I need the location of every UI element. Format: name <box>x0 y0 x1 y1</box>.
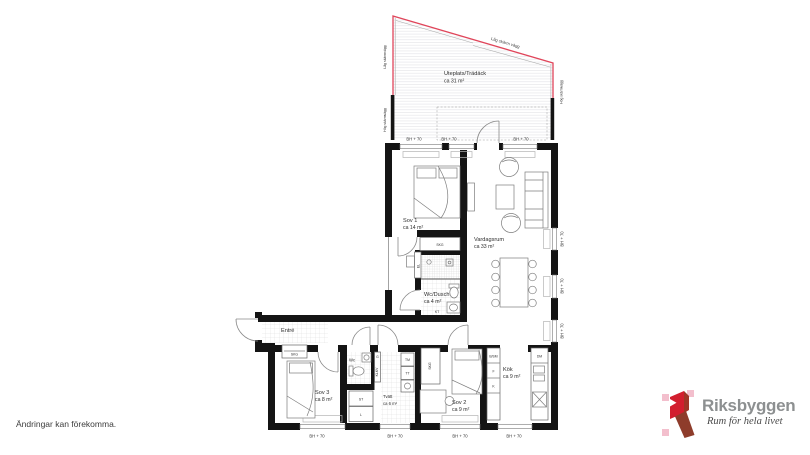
dim-label: BH + 70 <box>387 434 403 439</box>
screen-wall-left-lower-label: Hög skärmvägg <box>383 108 387 132</box>
window <box>552 320 556 342</box>
sov2-area: ca 9 m² <box>452 407 470 413</box>
terrace-area: ca 31 m² <box>444 79 464 85</box>
sov3-area: ca 8 m² <box>315 397 333 403</box>
coffee-table <box>496 185 514 209</box>
laundry-sink <box>401 380 414 392</box>
el-label: EL <box>417 264 421 268</box>
sov1-door-arc <box>398 237 417 256</box>
l-label: L <box>360 413 362 417</box>
entrance-door-arc <box>236 319 258 341</box>
wardrobe-label: SKG <box>436 243 444 247</box>
bsm-label: B/SM <box>489 355 497 359</box>
tt-label: TT <box>405 372 409 376</box>
dim-label: BH + 70 <box>513 137 529 142</box>
wardrobe-label: SKG <box>428 362 432 370</box>
dishwasher-label: DM <box>537 355 542 359</box>
terrace-high-screen-right <box>551 98 555 140</box>
desk <box>420 390 446 413</box>
tvatt-label: Tvätt <box>383 394 393 399</box>
vardagsrum-area: ca 33 m² <box>474 244 494 250</box>
window <box>503 144 537 148</box>
window <box>300 424 345 428</box>
g-label: G <box>376 355 379 359</box>
sov3-label: Sov 3 <box>315 390 329 396</box>
kok-label: Kök <box>503 367 513 373</box>
kitchen-counter <box>531 348 548 420</box>
room-vardagsrum: Vardagsrum ca 33 m² <box>468 158 549 308</box>
wcdusch-door-arc <box>400 290 420 310</box>
shower-area <box>421 255 460 279</box>
dim-label: BH + 70 <box>506 434 522 439</box>
kt-label: KT <box>435 310 439 314</box>
dim-label: BH + 70 <box>560 323 565 339</box>
window <box>380 424 410 428</box>
tvatt-area: ca 6 m² <box>383 401 398 406</box>
floorplan-drawing: Uteplats/Trädäck ca 31 m² Låg skärm vägg… <box>0 0 810 455</box>
brand-name: Riksbyggen <box>702 397 802 415</box>
room-wc: Wc G KLKV <box>347 352 381 384</box>
sov2-label: Sov 2 <box>452 400 466 406</box>
tv-bench <box>468 183 475 211</box>
sov1-label: Sov 1 <box>403 218 417 224</box>
terrace-label: Uteplats/Trädäck <box>444 71 486 77</box>
dim-label: BH + 70 <box>452 434 468 439</box>
sov2-door-arc <box>448 325 468 345</box>
sov1-area: ca 14 m² <box>403 225 423 231</box>
toilet <box>349 366 353 376</box>
tvatt-door-arc <box>378 325 398 345</box>
room-sov1: SKG Sov 1 ca 14 m² <box>403 166 460 251</box>
wc-label: Wc <box>349 358 355 363</box>
wardrobe-label: SKG <box>291 353 299 357</box>
sofa <box>525 172 548 228</box>
wcdusch-area: ca 4 m² <box>424 299 442 305</box>
dim-label: BH + 70 <box>441 137 457 142</box>
terrace-high-screen-left <box>391 95 395 140</box>
tm-label: TM <box>405 358 410 362</box>
disclaimer-text: Ändringar kan förekomma. <box>16 419 116 429</box>
klkv-label: KLKV <box>375 367 379 376</box>
vardagsrum-label: Vardagsrum <box>474 237 504 243</box>
dim-label: BH + 70 <box>406 137 422 142</box>
wcdusch-label: Wc/Dusch <box>424 292 450 298</box>
room-wcdusch: EL Wc/Dusch ca 4 m² KT <box>407 252 461 315</box>
screen-wall-right-label: Hög skärmvägg <box>560 80 564 104</box>
wc-door-arc <box>352 327 370 345</box>
sov3-door-arc <box>318 352 338 372</box>
window <box>552 275 556 298</box>
brand-tagline: Rum för hela livet <box>707 416 802 427</box>
st-label: ST <box>359 398 363 402</box>
room-kok: B/SM F K DM Kök ca 9 m² <box>487 348 548 420</box>
riksbyggen-logo-mark <box>660 388 700 442</box>
entre-label: Entré <box>281 328 294 334</box>
room-sov2: SKG Sov 2 ca 9 m² <box>420 348 482 413</box>
terrace: Uteplats/Trädäck ca 31 m² Låg skärm vägg… <box>383 16 564 140</box>
dining-table <box>500 258 528 307</box>
kok-area: ca 9 m² <box>503 374 521 380</box>
dim-label: BH + 70 <box>309 434 325 439</box>
window <box>552 228 556 250</box>
entre-floor <box>262 322 328 343</box>
terrace-deck <box>393 16 553 140</box>
dim-label: BH + 70 <box>560 231 565 247</box>
window <box>440 424 480 428</box>
dim-label: BH + 70 <box>560 278 565 294</box>
washbasin <box>362 353 371 362</box>
room-sov3: Sov 3 ca 8 m² <box>287 361 333 418</box>
floorplan-page: Uteplats/Trädäck ca 31 m² Låg skärm vägg… <box>0 0 810 455</box>
window <box>449 144 474 148</box>
freezer-label: F <box>492 370 494 374</box>
riksbyggen-logo: Riksbyggen Rum för hela livet <box>660 388 802 444</box>
window <box>498 424 532 428</box>
window <box>400 144 442 148</box>
screen-wall-left-upper-label: Låg skärmvägg <box>383 45 387 68</box>
